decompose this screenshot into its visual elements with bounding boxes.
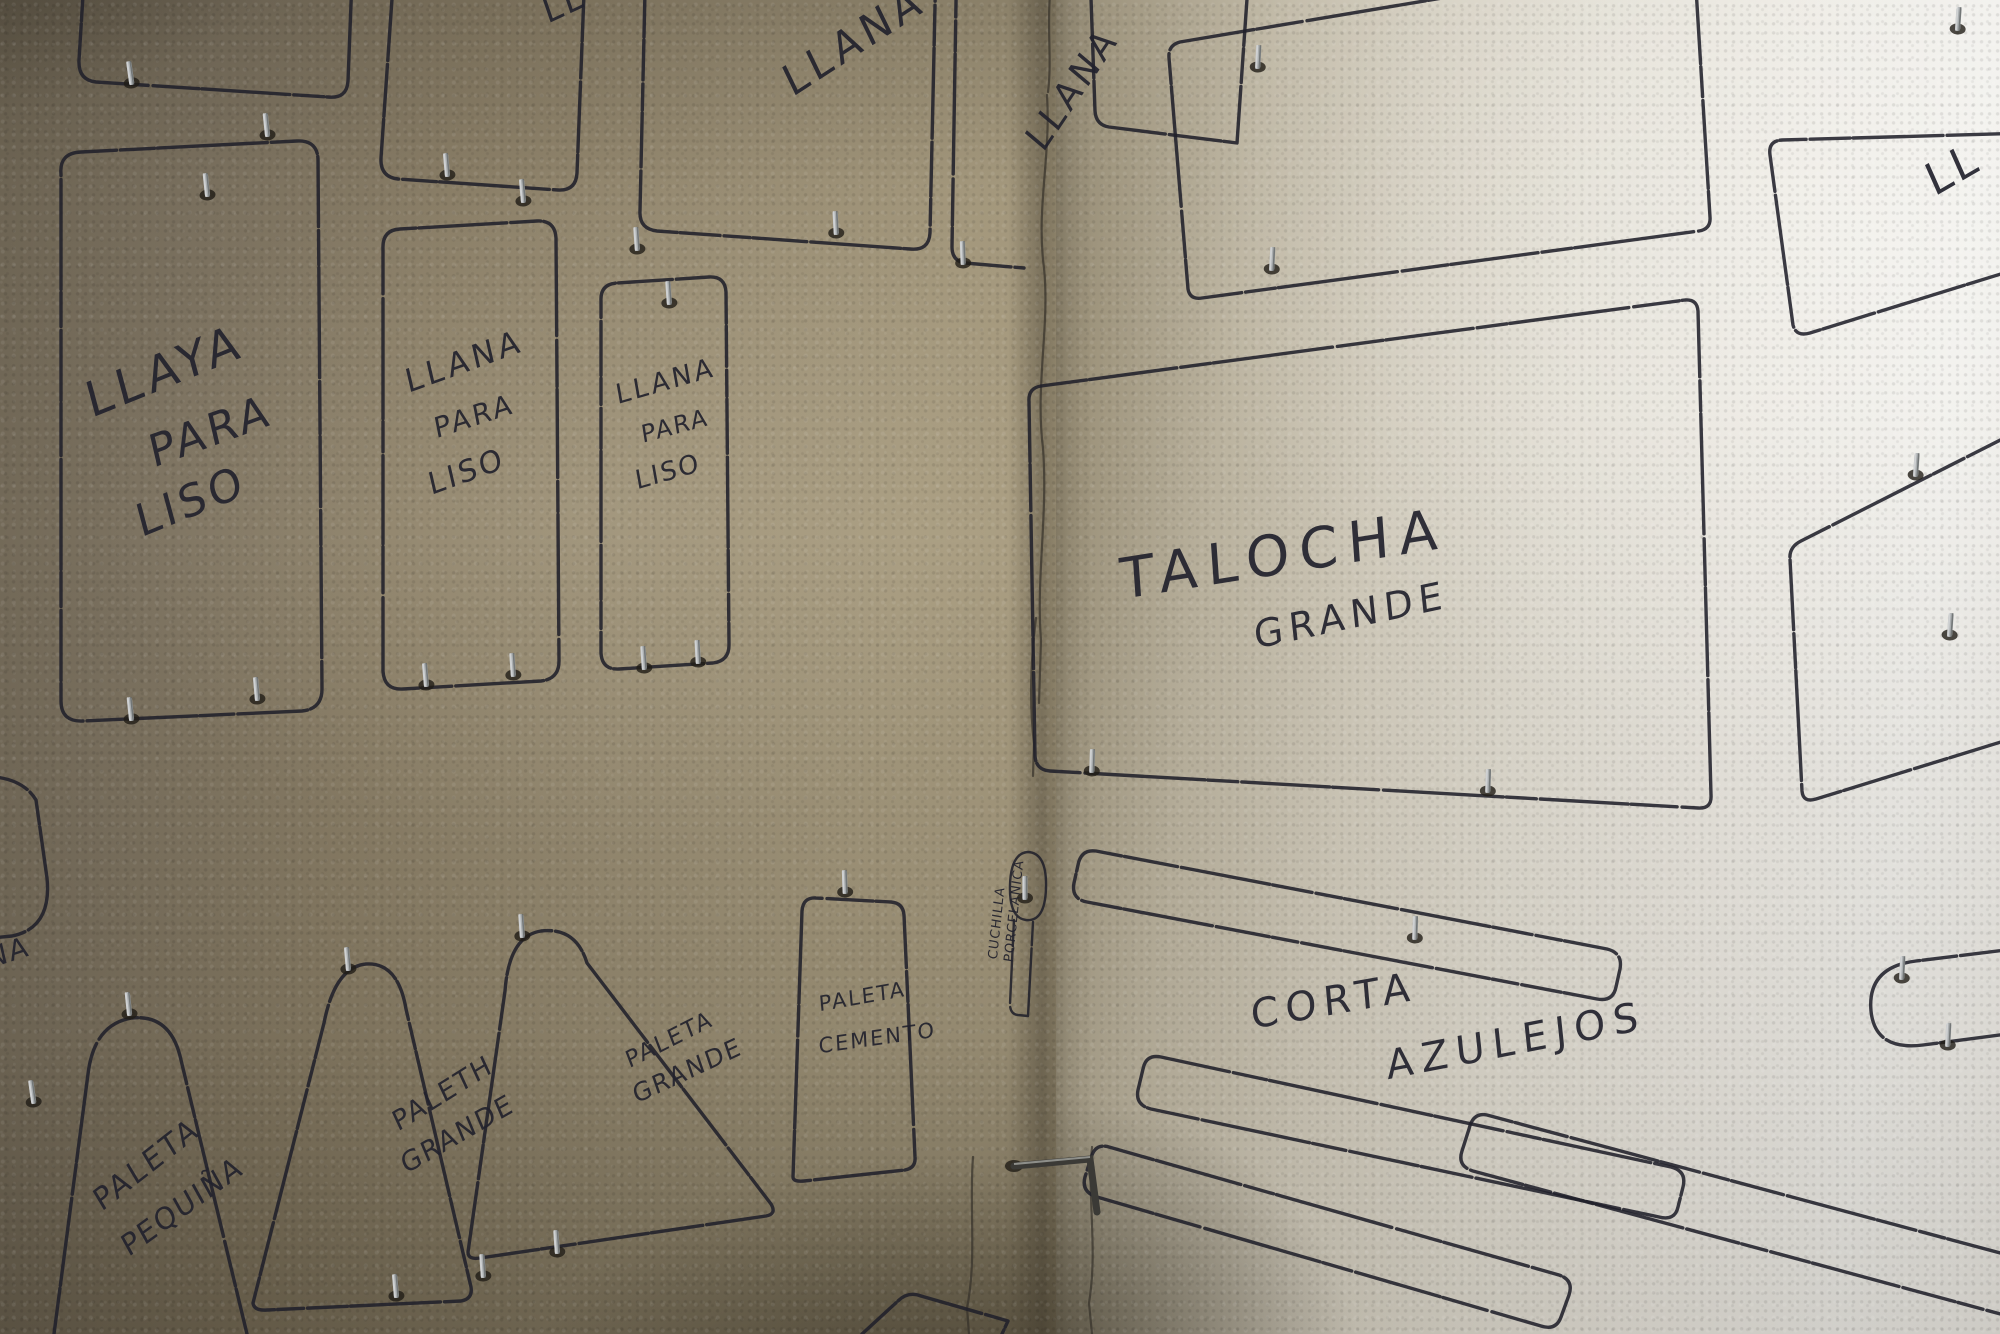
outline-right-handle <box>1871 947 2000 1046</box>
label-llaya-para-liso: LLAYA PARA LISO <box>80 338 275 522</box>
wall-hook <box>836 870 853 898</box>
wall-hook <box>1907 452 1925 481</box>
wall-crack <box>967 1157 973 1334</box>
wall-hook <box>257 112 276 141</box>
wall-hook <box>513 913 531 942</box>
label-corta-azulejos: CORTA AZULEJOS <box>1248 958 1648 1064</box>
wall-hook <box>1480 769 1497 797</box>
wall-hook <box>417 662 435 691</box>
wall-hook <box>121 696 140 725</box>
outline-right-top-2 <box>1169 0 1710 298</box>
outline-llana-top-4 <box>952 0 1024 268</box>
label-talocha-grande: TALOCHA GRANDE <box>1118 522 1450 637</box>
label-line: PARA <box>639 401 718 449</box>
wall-hook <box>1249 45 1266 73</box>
wall-hook <box>1084 749 1101 777</box>
wall-hook <box>827 211 844 239</box>
wall-hook <box>628 226 646 255</box>
wall-hook <box>339 946 357 975</box>
wall-hook <box>1939 1023 1956 1051</box>
corner-crack <box>1048 0 1050 92</box>
wall-hook <box>23 1079 43 1108</box>
label-paleta-pequena: PALETA PEQUIÑA <box>78 1132 254 1223</box>
wall-hook <box>197 172 216 201</box>
wall-hook <box>514 178 532 207</box>
wall-hook <box>1949 6 1967 35</box>
outline-bar-4 <box>1461 1115 2000 1322</box>
wall-hook <box>1407 916 1424 944</box>
wall-hook <box>248 676 266 705</box>
wall-hook <box>635 645 653 674</box>
wall-hook <box>504 652 522 681</box>
workshop-tool-wall-photo: LL LLANA LLANA NA LL LLAYA PARA LISO LLA… <box>0 0 2000 1334</box>
label-llana-para-liso-2: LLANA PARA LISO <box>402 342 526 486</box>
wall-hook <box>689 640 706 668</box>
wall-hook <box>438 152 456 181</box>
outline-left-edge-tool <box>0 776 48 941</box>
wall-hook <box>1941 612 1959 641</box>
wall-hook <box>1263 247 1280 275</box>
label-paleth-grande: PALETH GRANDE <box>384 1072 521 1150</box>
label-paleta-grande: PALETA GRANDE <box>620 1020 747 1085</box>
outline-llana-top-1 <box>79 0 357 97</box>
corner-crack <box>1039 95 1048 703</box>
wall-hook <box>660 280 678 309</box>
wall-hook <box>954 241 971 269</box>
outline-right-mid-partial <box>1790 425 2000 800</box>
wall-hook <box>548 1229 566 1258</box>
wall-hook <box>387 1273 405 1302</box>
label-paleta-cemento: PALETA CEMENTO <box>818 982 936 1050</box>
outline-bottom-partial-tool <box>862 1294 1008 1334</box>
label-llana-para-liso-3: LLANA PARA LISO <box>614 366 717 485</box>
tool-outlines-layer <box>0 0 2000 1334</box>
wall-hook <box>119 991 138 1020</box>
outline-bar-3 <box>1084 1146 1570 1327</box>
wall-hook <box>1893 956 1910 984</box>
